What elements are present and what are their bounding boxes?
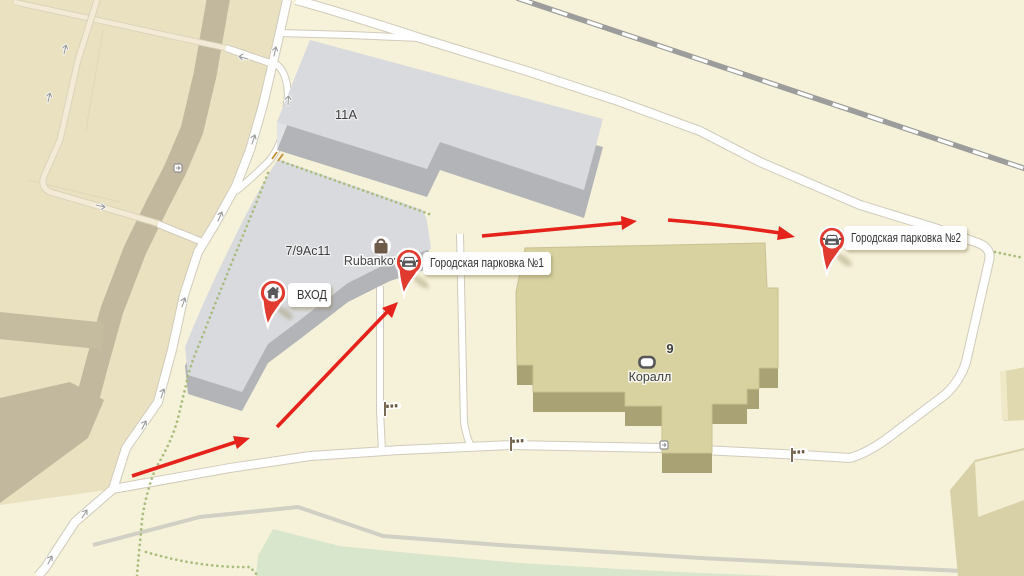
svg-text:11А: 11А (335, 107, 357, 122)
svg-text:9: 9 (666, 341, 673, 356)
svg-text:Городская парковка №1: Городская парковка №1 (430, 256, 544, 270)
svg-text:Rubankov: Rubankov (344, 254, 401, 268)
svg-text:Городская парковка №2: Городская парковка №2 (851, 231, 961, 245)
svg-text:ВХОД: ВХОД (297, 287, 327, 302)
svg-text:7/9Ас11: 7/9Ас11 (286, 244, 331, 258)
svg-text:Коралл: Коралл (629, 370, 672, 384)
